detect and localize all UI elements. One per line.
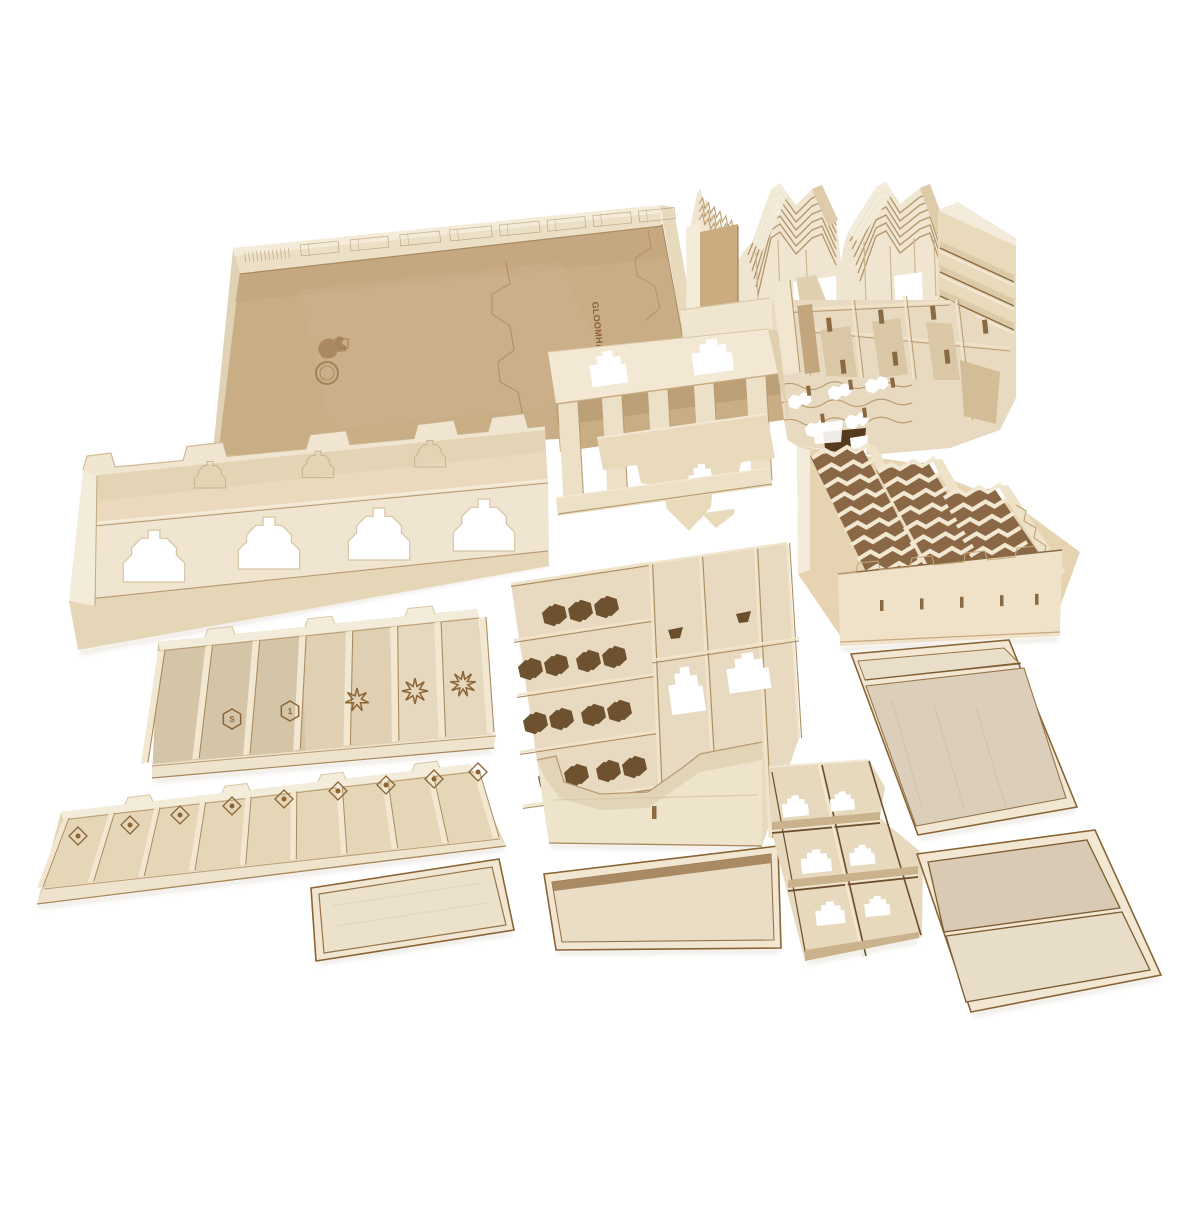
svg-text:1: 1 xyxy=(288,707,293,716)
svg-text:S: S xyxy=(229,715,235,724)
